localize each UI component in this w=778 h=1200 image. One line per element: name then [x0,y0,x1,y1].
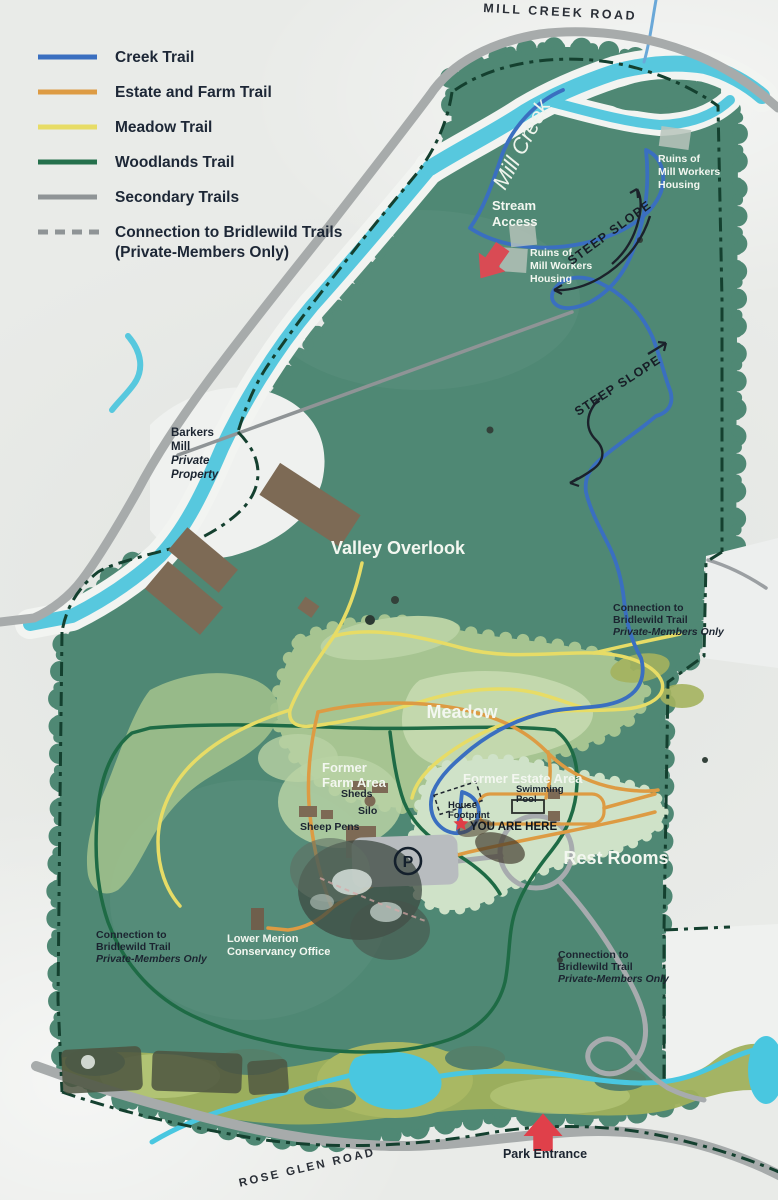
sheds-label: Sheds [341,788,373,800]
stain-white-patch-3 [310,894,334,910]
ruins-ne-label-2: Mill Workers [658,166,720,178]
barkers-mill-label-2: Mill [171,441,190,453]
stain-white-patch [332,869,372,895]
ruins-ne-structure [659,126,691,150]
park-entrance-label: Park Entrance [503,1147,587,1161]
rest-rooms-label: Rest Rooms [563,848,668,868]
mill-creek-road-label: MILL CREEK ROAD [483,1,637,23]
bridlewild-se-label-3: Private-Members Only [558,973,670,985]
ruins-w-label-2: Mill Workers [530,260,592,272]
legend-label-estate-farm-trail: Estate and Farm Trail [115,84,272,101]
legend: Creek Trail Estate and Farm Trail Meadow… [38,49,342,261]
speck [487,427,494,434]
sheep-pen-2 [321,810,333,819]
speck [391,596,399,604]
rose-glen-road-label: ROSE GLEN ROAD [238,1147,377,1190]
sheep-pen-1 [299,806,317,817]
house-footprint-label-2: Footprint [448,810,491,821]
estate-structure-2 [548,811,560,821]
bridlewild-east-label-2: Bridlewild Trail [613,614,688,626]
stain-bottom-left-2 [151,1051,242,1094]
speck [365,615,375,625]
park-map-sign: P MILL CREEK ROAD ROSE GLEN ROAD Mill Cr… [0,0,778,1200]
sheep-pens-label: Sheep Pens [300,821,360,833]
stain-white-patch-2 [370,902,402,922]
stream-access-label-1: Stream [492,198,536,213]
barkers-mill-label-3: Private [171,455,210,467]
ruins-ne-label-1: Ruins of [658,153,700,165]
stain-bottom-left-1 [61,1046,143,1094]
barkers-mill-label-4: Property [171,469,219,481]
bridlewild-sw-label-1: Connection to [96,929,167,941]
parking-icon-letter: P [403,854,414,871]
conservancy-office-building [251,908,264,930]
silo-label: Silo [358,805,377,817]
bridlewild-east-label-1: Connection to [613,602,684,614]
bridlewild-east-label-3: Private-Members Only [613,626,725,638]
you-are-here-label: YOU ARE HERE [470,821,557,833]
swimming-pool-label-2: Pool [516,794,537,805]
stream-access-label-2: Access [492,214,538,229]
bridlewild-se-label-2: Bridlewild Trail [558,961,633,973]
legend-label-bridlewild-connection-2: (Private-Members Only) [115,244,289,261]
stain-speck [81,1055,95,1069]
valley-overlook-label: Valley Overlook [331,538,466,558]
bridlewild-sw-label-2: Bridlewild Trail [96,941,171,953]
legend-label-secondary-trails: Secondary Trails [115,189,239,206]
ruins-w-label-3: Housing [530,273,572,285]
former-farm-area-label-1: Former [322,760,367,775]
stream-west [112,336,140,410]
legend-label-meadow-trail: Meadow Trail [115,119,212,136]
speck [702,757,708,763]
ruins-ne-label-3: Housing [658,179,700,191]
stain-bottom-left-3 [247,1059,289,1096]
legend-label-woodlands-trail: Woodlands Trail [115,154,234,171]
tree-clump [304,1087,356,1109]
conservancy-office-label-2: Conservancy Office [227,946,330,958]
meadow-label: Meadow [426,702,498,722]
bridlewild-se-label-1: Connection to [558,949,629,961]
conservancy-office-label-1: Lower Merion [227,933,299,945]
barkers-mill-label-1: Barkers [171,427,214,439]
legend-label-bridlewild-connection: Connection to Bridlewild Trails [115,224,342,241]
bridlewild-sw-label-3: Private-Members Only [96,953,208,965]
tree-clump [445,1046,505,1070]
legend-label-creek-trail: Creek Trail [115,49,194,66]
